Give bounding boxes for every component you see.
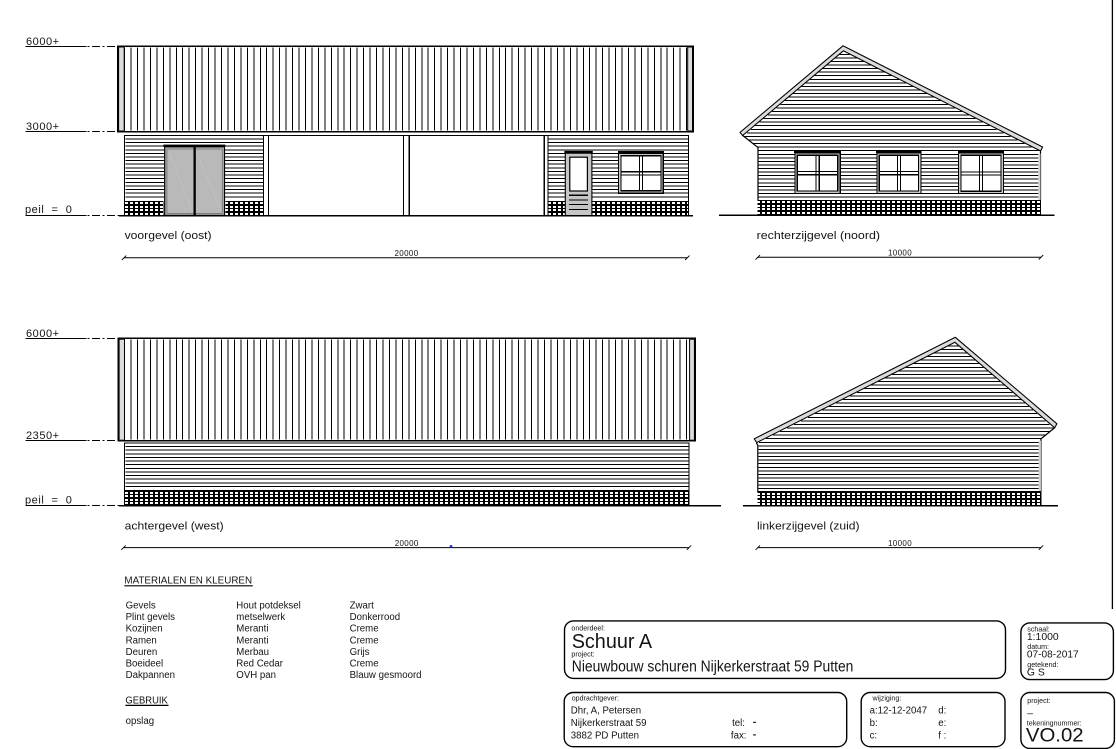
- svg-text:Zwart: Zwart: [350, 600, 374, 611]
- svg-text:Creme: Creme: [350, 658, 379, 669]
- svg-text:e:: e:: [938, 718, 946, 729]
- svg-text:Kozijnen: Kozijnen: [126, 623, 163, 634]
- svg-text:peil = 0: peil = 0: [25, 204, 72, 216]
- svg-text:opdrachtgever:: opdrachtgever:: [572, 694, 619, 702]
- svg-text:20000: 20000: [395, 539, 419, 548]
- svg-text:Dakpannen: Dakpannen: [126, 670, 175, 681]
- svg-text:Dhr, A, Petersen: Dhr, A, Petersen: [571, 705, 641, 716]
- svg-text:Meranti: Meranti: [236, 635, 268, 646]
- svg-text:achtergevel (west): achtergevel (west): [125, 520, 224, 532]
- svg-text:Grijs: Grijs: [350, 647, 370, 658]
- svg-text:Meranti: Meranti: [236, 623, 268, 634]
- svg-text:Deuren: Deuren: [126, 647, 158, 658]
- svg-text:07-08-2017: 07-08-2017: [1027, 650, 1079, 661]
- svg-text:opslag: opslag: [126, 716, 154, 727]
- svg-text:20000: 20000: [395, 249, 419, 258]
- svg-text:3882 PD Putten: 3882 PD Putten: [571, 730, 639, 741]
- svg-text:-: -: [753, 717, 757, 728]
- svg-text:fax:: fax:: [731, 730, 747, 741]
- svg-text:b:: b:: [870, 718, 878, 729]
- svg-text:10000: 10000: [888, 539, 912, 548]
- svg-text:VO.02: VO.02: [1026, 724, 1084, 746]
- svg-text:OVH pan: OVH pan: [236, 670, 276, 681]
- svg-text:linkerzijgevel (zuid): linkerzijgevel (zuid): [757, 520, 860, 532]
- svg-text:a:12-12-2047: a:12-12-2047: [870, 705, 928, 716]
- svg-text:G S: G S: [1027, 668, 1045, 679]
- svg-text:c:: c:: [870, 730, 878, 741]
- svg-text:tel:: tel:: [732, 718, 745, 729]
- svg-text:-: -: [753, 730, 757, 741]
- svg-text:1:1000: 1:1000: [1027, 632, 1059, 643]
- svg-text:Merbau: Merbau: [236, 647, 269, 658]
- svg-text:d:: d:: [938, 705, 946, 716]
- svg-text:peil = 0: peil = 0: [25, 494, 72, 506]
- svg-text:Red Cedar: Red Cedar: [236, 658, 283, 669]
- svg-text:Boeideel: Boeideel: [126, 658, 164, 669]
- svg-text:metselwerk: metselwerk: [236, 612, 286, 623]
- svg-text:voorgevel (oost): voorgevel (oost): [125, 230, 212, 242]
- svg-text:–: –: [1027, 709, 1033, 720]
- svg-text:project:: project:: [1027, 697, 1050, 705]
- svg-text:Plint gevels: Plint gevels: [126, 612, 175, 623]
- svg-text:Ramen: Ramen: [126, 635, 157, 646]
- svg-text:Creme: Creme: [350, 623, 379, 634]
- svg-text:project:: project:: [571, 651, 594, 659]
- svg-text:f :: f :: [938, 730, 946, 741]
- svg-text:Nijkerkerstraat 59: Nijkerkerstraat 59: [571, 718, 647, 729]
- svg-text:rechterzijgevel (noord): rechterzijgevel (noord): [757, 230, 880, 242]
- svg-text:Nieuwbouw schuren Nijkerkerstr: Nieuwbouw schuren Nijkerkerstraat 59 Put…: [572, 658, 854, 675]
- svg-text:Donkerrood: Donkerrood: [350, 612, 400, 623]
- svg-text:wijziging:: wijziging:: [872, 694, 902, 702]
- svg-text:Blauw gesmoord: Blauw gesmoord: [350, 670, 422, 681]
- svg-text:10000: 10000: [888, 249, 912, 258]
- svg-text:Creme: Creme: [350, 635, 379, 646]
- svg-text:GEBRUIK: GEBRUIK: [125, 695, 168, 706]
- svg-text:Hout potdeksel: Hout potdeksel: [236, 600, 300, 611]
- svg-text:MATERIALEN EN KLEUREN: MATERIALEN EN KLEUREN: [124, 576, 252, 587]
- svg-text:Gevels: Gevels: [126, 600, 156, 611]
